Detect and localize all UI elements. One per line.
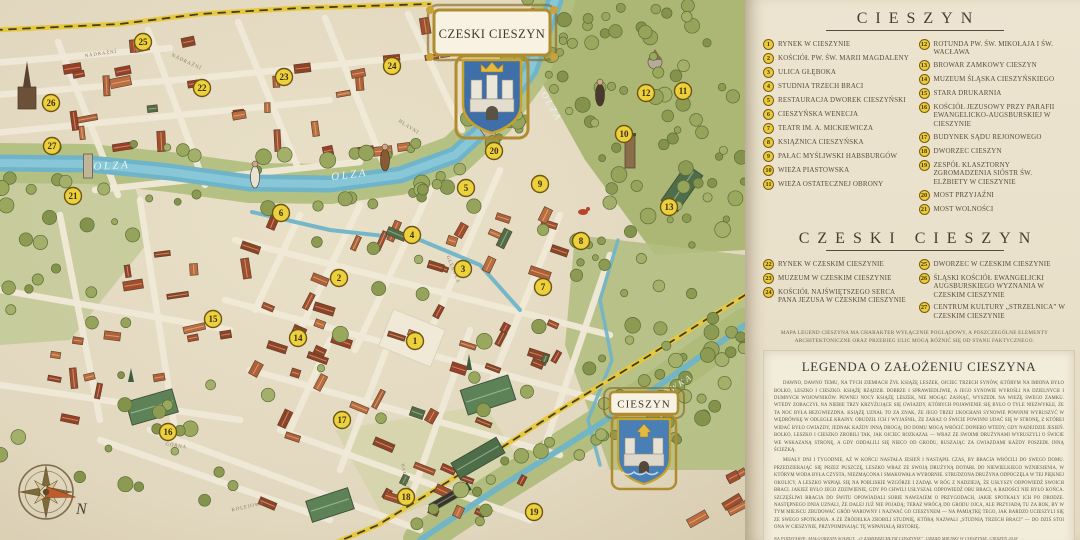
marker-badge: 1 bbox=[763, 39, 774, 50]
legend-item-label: STUDNIA TRZECH BRACI bbox=[778, 80, 863, 90]
svg-text:23: 23 bbox=[280, 72, 290, 82]
svg-text:7: 7 bbox=[541, 282, 546, 292]
marker-badge: 24 bbox=[763, 287, 774, 298]
svg-text:25: 25 bbox=[139, 37, 149, 47]
marker-badge: 21 bbox=[919, 204, 930, 215]
legend-column: 25DWORZEC W CZESKIM CIESZYNIE26ŚLĄSKI KO… bbox=[919, 258, 1067, 323]
legend-item-label: MOST WOLNOŚCI bbox=[934, 203, 994, 213]
legend-item: 1RYNEK W CIESZYNIE bbox=[763, 38, 911, 50]
legend-item: 8KSIĄŻNICA CIESZYŃSKA bbox=[763, 137, 911, 149]
svg-text:16: 16 bbox=[164, 427, 174, 437]
marker-badge: 7 bbox=[763, 123, 774, 134]
compass-north-label: N bbox=[75, 501, 88, 518]
marker-badge: 2 bbox=[763, 53, 774, 64]
marker-badge: 13 bbox=[919, 60, 930, 71]
legend-item-label: RESTAURACJA DWOREK CIESZYŃSKI bbox=[778, 94, 906, 104]
map-marker-7: 7 bbox=[535, 279, 552, 296]
map-marker-15: 15 bbox=[205, 311, 222, 328]
legend-item: 25DWORZEC W CZESKIM CIESZYNIE bbox=[919, 258, 1067, 270]
marker-badge: 22 bbox=[763, 259, 774, 270]
legend-item-label: DWORZEC CIESZYN bbox=[934, 145, 1002, 155]
legend-item-label: KOŚCIÓŁ JEZUSOWY PRZY PARAFII EWANGELICK… bbox=[934, 101, 1067, 128]
legend-item: 22RYNEK W CZESKIM CIESZYNIE bbox=[763, 258, 911, 270]
legend-column: 12ROTUNDA PW. ŚW. MIKOŁAJA I ŚW. WACŁAWA… bbox=[919, 38, 1067, 217]
legend-column: 1RYNEK W CIESZYNIE2KOŚCIÓŁ PW. ŚW. MARII… bbox=[763, 38, 911, 217]
map-marker-17: 17 bbox=[334, 412, 351, 429]
legend-item: 15STARA DRUKARNIA bbox=[919, 87, 1067, 99]
svg-text:1: 1 bbox=[413, 336, 418, 346]
svg-text:21: 21 bbox=[69, 191, 79, 201]
marker-badge: 10 bbox=[763, 165, 774, 176]
marker-badge: 18 bbox=[919, 146, 930, 157]
svg-text:26: 26 bbox=[47, 98, 57, 108]
svg-text:10: 10 bbox=[620, 129, 630, 139]
legend-item: 24KOŚCIÓŁ NAJŚWIĘTSZEGO SERCA PANA JEZUS… bbox=[763, 286, 911, 305]
map-marker-1: 1 bbox=[407, 333, 424, 350]
map-marker-3: 3 bbox=[455, 261, 472, 278]
legend-column: 22RYNEK W CZESKIM CIESZYNIE23MUZEUM W CZ… bbox=[763, 258, 911, 323]
svg-text:4: 4 bbox=[410, 230, 415, 240]
legend-item: 2KOŚCIÓŁ PW. ŚW. MARII MAGDALENY bbox=[763, 52, 911, 64]
map-marker-5: 5 bbox=[458, 180, 475, 197]
map-marker-26: 26 bbox=[43, 95, 60, 112]
svg-text:9: 9 bbox=[538, 179, 543, 189]
map-marker-18: 18 bbox=[398, 489, 415, 506]
svg-text:2: 2 bbox=[337, 273, 342, 283]
legend-item-label: KOŚCIÓŁ PW. ŚW. MARII MAGDALENY bbox=[778, 52, 909, 62]
svg-text:22: 22 bbox=[198, 83, 208, 93]
legend-item: 9PAŁAC MYŚLIWSKI HABSBURGÓW bbox=[763, 151, 911, 163]
legend-section-cieszyn: CIESZYN 1RYNEK W CIESZYNIE2KOŚCIÓŁ PW. Ś… bbox=[763, 10, 1066, 217]
svg-text:19: 19 bbox=[530, 507, 540, 517]
section-title: CZESKI CIESZYN bbox=[763, 230, 1066, 248]
marker-badge: 11 bbox=[763, 179, 774, 190]
river-label: OLZA bbox=[93, 159, 130, 173]
marker-badge: 12 bbox=[919, 39, 930, 50]
marker-badge: 15 bbox=[919, 88, 930, 99]
svg-text:17: 17 bbox=[338, 415, 348, 425]
map-marker-10: 10 bbox=[616, 126, 633, 143]
map-marker-11: 11 bbox=[675, 83, 692, 100]
legend-section-czeski-cieszyn: CZESKI CIESZYN 22RYNEK W CZESKIM CIESZYN… bbox=[763, 230, 1066, 323]
svg-text:13: 13 bbox=[665, 202, 675, 212]
map-marker-19: 19 bbox=[526, 504, 543, 521]
legend-item: 14MUZEUM ŚLĄSKA CIESZYŃSKIEGO bbox=[919, 73, 1067, 85]
legend-item-label: ULICA GŁĘBOKA bbox=[778, 66, 836, 76]
legend-item-label: WIEŻA PIASTOWSKA bbox=[778, 165, 849, 175]
legend-panel: CIESZYN 1RYNEK W CIESZYNIE2KOŚCIÓŁ PW. Ś… bbox=[745, 0, 1080, 540]
map-marker-6: 6 bbox=[273, 205, 290, 222]
legend-item-label: RYNEK W CZESKIM CIESZYNIE bbox=[778, 258, 884, 268]
svg-text:12: 12 bbox=[642, 88, 652, 98]
map-marker-23: 23 bbox=[276, 69, 293, 86]
legend-item-label: KOŚCIÓŁ NAJŚWIĘTSZEGO SERCA PANA JEZUSA … bbox=[778, 286, 911, 305]
marker-badge: 9 bbox=[763, 151, 774, 162]
legend-item-label: ŚLĄSKI KOŚCIÓŁ EWANGELICKI AUGSBURSKIEGO… bbox=[934, 272, 1067, 299]
legend-item-label: DWORZEC W CZESKIM CIESZYNIE bbox=[934, 258, 1051, 268]
story-paragraph: DAWNO, DAWNO TEMU, NA TYCH ZIEMIACH ŻYŁ … bbox=[774, 380, 1064, 454]
map-marker-14: 14 bbox=[290, 330, 307, 347]
legend-item: 21MOST WOLNOŚCI bbox=[919, 203, 1067, 215]
legend-item: 17BUDYNEK SĄDU REJONOWEGO bbox=[919, 131, 1067, 143]
legend-item: 27CENTRUM KULTURY „STRZELNICA” W CZESKIM… bbox=[919, 302, 1067, 321]
banner-title: CZESKI CIESZYN bbox=[439, 27, 546, 41]
svg-text:11: 11 bbox=[679, 86, 688, 96]
legend-item-label: ROTUNDA PW. ŚW. MIKOŁAJA I ŚW. WACŁAWA bbox=[934, 38, 1067, 57]
svg-text:15: 15 bbox=[209, 314, 219, 324]
svg-text:3: 3 bbox=[461, 264, 466, 274]
marker-badge: 6 bbox=[763, 109, 774, 120]
legend-item-label: BUDYNEK SĄDU REJONOWEGO bbox=[934, 131, 1042, 141]
map-marker-22: 22 bbox=[194, 80, 211, 97]
founding-legend-box: LEGENDA O ZAŁOŻENIU CIESZYNA DAWNO, DAWN… bbox=[763, 350, 1075, 540]
map-disclaimer: MAPA LEGEND CIESZYNA MA CHARAKTER WYŁĄCZ… bbox=[764, 330, 1066, 345]
map-marker-24: 24 bbox=[384, 58, 401, 75]
section-title: CIESZYN bbox=[763, 10, 1066, 28]
illustrated-map: OLZAOLZAOLZABOBRÓWKANÁDRAŽNÍNÁDRAŽNÍHLAV… bbox=[0, 0, 745, 540]
story-title: LEGENDA O ZAŁOŻENIU CIESZYNA bbox=[774, 359, 1064, 375]
legend-item-label: WIEŻA OSTATECZNEJ OBRONY bbox=[778, 179, 883, 189]
story-source: NA PODSTAWIE: MAŁGORZATA SOŁBUT, „O ZAMI… bbox=[774, 536, 1064, 540]
marker-badge: 3 bbox=[763, 67, 774, 78]
svg-text:27: 27 bbox=[48, 141, 58, 151]
map-marker-20: 20 bbox=[486, 143, 503, 160]
legend-item-label: RYNEK W CIESZYNIE bbox=[778, 38, 850, 48]
map-marker-13: 13 bbox=[661, 199, 678, 216]
map-marker-25: 25 bbox=[135, 34, 152, 51]
legend-item: 7TEATR IM. A. MICKIEWICZA bbox=[763, 123, 911, 135]
map-marker-27: 27 bbox=[44, 138, 61, 155]
legend-item-label: MUZEUM ŚLĄSKA CIESZYŃSKIEGO bbox=[934, 73, 1055, 83]
cieszyn-map-poster: OLZAOLZAOLZABOBRÓWKANÁDRAŽNÍNÁDRAŽNÍHLAV… bbox=[0, 0, 1080, 540]
svg-text:20: 20 bbox=[490, 146, 500, 156]
legend-item-label: MUZEUM W CZESKIM CIESZYNIE bbox=[778, 272, 892, 282]
legend-item: 12ROTUNDA PW. ŚW. MIKOŁAJA I ŚW. WACŁAWA bbox=[919, 38, 1067, 57]
story-text: DAWNO, DAWNO TEMU, NA TYCH ZIEMIACH ŻYŁ … bbox=[774, 380, 1064, 531]
legend-item-label: BROWAR ZAMKOWY CIESZYN bbox=[934, 59, 1037, 69]
marker-badge: 27 bbox=[919, 302, 930, 313]
legend-item: 3ULICA GŁĘBOKA bbox=[763, 66, 911, 78]
marker-badge: 16 bbox=[919, 102, 930, 113]
marker-badge: 8 bbox=[763, 137, 774, 148]
legend-item: 23MUZEUM W CZESKIM CIESZYNIE bbox=[763, 272, 911, 284]
legend-item-label: STARA DRUKARNIA bbox=[934, 87, 1002, 97]
legend-item: 6CIESZYŃSKA WENECJA bbox=[763, 108, 911, 120]
map-marker-4: 4 bbox=[404, 227, 421, 244]
legend-item: 20MOST PRZYJAŹNI bbox=[919, 189, 1067, 201]
legend-item: 26ŚLĄSKI KOŚCIÓŁ EWANGELICKI AUGSBURSKIE… bbox=[919, 272, 1067, 299]
map-marker-2: 2 bbox=[331, 270, 348, 287]
marker-badge: 19 bbox=[919, 160, 930, 171]
marker-badge: 25 bbox=[919, 259, 930, 270]
legend-item: 16KOŚCIÓŁ JEZUSOWY PRZY PARAFII EWANGELI… bbox=[919, 101, 1067, 128]
legend-item: 19ZESPÓŁ KLASZTORNY ZGROMADZENIA SIÓSTR … bbox=[919, 159, 1067, 186]
marker-badge: 20 bbox=[919, 190, 930, 201]
legend-item: 18DWORZEC CIESZYN bbox=[919, 145, 1067, 157]
title-rule bbox=[826, 250, 1004, 251]
title-rule bbox=[826, 30, 1004, 31]
svg-text:14: 14 bbox=[294, 333, 304, 343]
svg-text:24: 24 bbox=[388, 61, 398, 71]
map-marker-9: 9 bbox=[532, 176, 549, 193]
legend-item-label: TEATR IM. A. MICKIEWICZA bbox=[778, 123, 873, 133]
map-marker-12: 12 bbox=[638, 85, 655, 102]
legend-item-label: CIESZYŃSKA WENECJA bbox=[778, 108, 858, 118]
map-marker-16: 16 bbox=[160, 424, 177, 441]
marker-badge: 23 bbox=[763, 273, 774, 284]
map-marker-21: 21 bbox=[65, 188, 82, 205]
banner-title: CIESZYN bbox=[617, 399, 670, 411]
legend-item-label: KSIĄŻNICA CIESZYŃSKA bbox=[778, 137, 864, 147]
legend-item: 5RESTAURACJA DWOREK CIESZYŃSKI bbox=[763, 94, 911, 106]
marker-badge: 4 bbox=[763, 81, 774, 92]
svg-text:5: 5 bbox=[464, 183, 469, 193]
svg-text:8: 8 bbox=[579, 236, 584, 246]
legend-item-label: PAŁAC MYŚLIWSKI HABSBURGÓW bbox=[778, 151, 897, 161]
svg-text:6: 6 bbox=[279, 208, 284, 218]
marker-badge: 14 bbox=[919, 74, 930, 85]
marker-badge: 17 bbox=[919, 132, 930, 143]
legend-item-label: CENTRUM KULTURY „STRZELNICA” W CZESKIM C… bbox=[934, 302, 1067, 321]
map-marker-8: 8 bbox=[573, 233, 590, 250]
story-paragraph: MIJAŁY DNI I TYGODNIE, AŻ W KOŃCU NASTAŁ… bbox=[774, 457, 1064, 531]
legend-item-label: MOST PRZYJAŹNI bbox=[934, 189, 995, 199]
legend-item: 4STUDNIA TRZECH BRACI bbox=[763, 80, 911, 92]
legend-item: 11WIEŻA OSTATECZNEJ OBRONY bbox=[763, 179, 911, 191]
legend-item: 10WIEŻA PIASTOWSKA bbox=[763, 165, 911, 177]
legend-item-label: ZESPÓŁ KLASZTORNY ZGROMADZENIA SIÓSTR ŚW… bbox=[934, 159, 1067, 186]
marker-badge: 5 bbox=[763, 95, 774, 106]
legend-item: 13BROWAR ZAMKOWY CIESZYN bbox=[919, 59, 1067, 71]
marker-badge: 26 bbox=[919, 273, 930, 284]
svg-text:18: 18 bbox=[402, 492, 412, 502]
